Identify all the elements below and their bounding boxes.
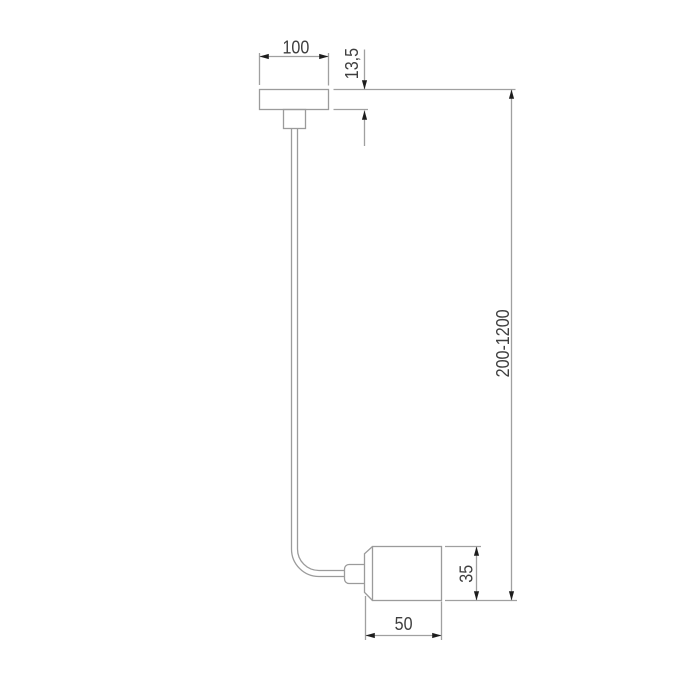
svg-text:100: 100	[282, 37, 309, 58]
svg-text:13,5: 13,5	[341, 48, 362, 79]
svg-text:35: 35	[455, 565, 476, 583]
svg-text:200-1200: 200-1200	[492, 309, 513, 377]
svg-text:50: 50	[395, 613, 413, 634]
